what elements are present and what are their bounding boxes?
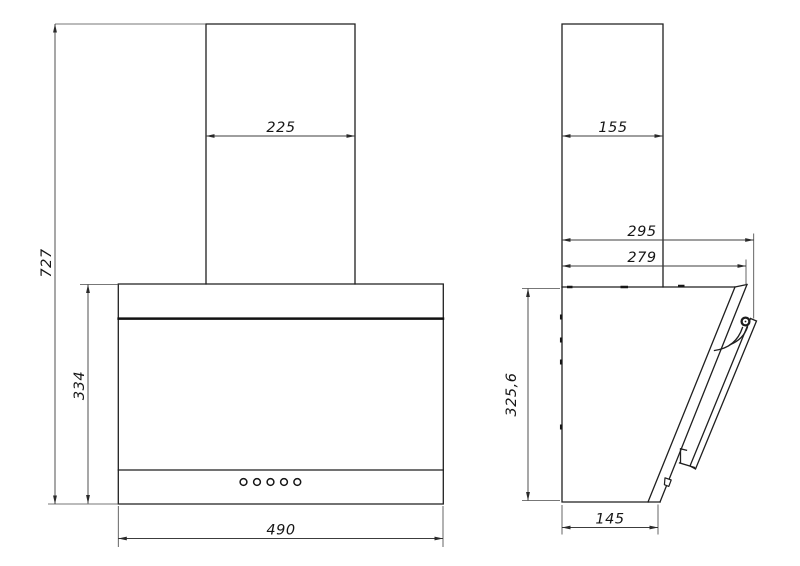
side-inclined-panel: [648, 285, 747, 503]
dim-side-base-depth: 145: [562, 505, 658, 535]
latch-tab: [664, 478, 671, 487]
glass-door-profile: [690, 319, 757, 470]
dim-label-727: 727: [39, 248, 55, 277]
hinge-screw: [742, 318, 750, 326]
dim-label-145: 145: [595, 512, 624, 528]
door-handle: [680, 449, 695, 468]
side-chimney-outline: [562, 24, 663, 287]
front-chimney-outline: [206, 24, 355, 284]
control-button: [240, 479, 247, 486]
dim-label-334: 334: [72, 371, 88, 400]
control-button: [294, 479, 301, 486]
dim-label-490: 490: [266, 523, 295, 539]
dim-side-overall-depth: 295: [562, 224, 754, 319]
dim-front-body-width: 490: [118, 506, 443, 547]
dim-front-body-height: 334: [72, 285, 118, 504]
dim-label-155: 155: [598, 120, 627, 136]
control-button: [281, 479, 288, 486]
dim-front-chimney-width: 225: [206, 120, 355, 136]
front-view: 727 334 225 490: [39, 24, 443, 547]
control-buttons: [240, 479, 301, 486]
dim-side-body-height: 325,6: [504, 289, 560, 501]
dim-front-overall-height: 727: [39, 24, 206, 504]
dim-side-chimney-depth: 155: [562, 120, 663, 136]
control-button: [254, 479, 261, 486]
side-view: 155 295 279 325,6 145: [504, 24, 757, 535]
dim-label-295: 295: [627, 224, 656, 240]
dim-label-279: 279: [627, 250, 656, 266]
control-button: [267, 479, 274, 486]
range-hood-dimension-drawing: 727 334 225 490: [0, 0, 800, 566]
front-body-outline: [118, 284, 443, 504]
dim-side-glass-depth: 279: [562, 250, 746, 285]
dim-label-325-6: 325,6: [504, 372, 520, 416]
technical-drawing-canvas: 727 334 225 490: [0, 0, 800, 566]
dim-label-225: 225: [266, 120, 295, 136]
